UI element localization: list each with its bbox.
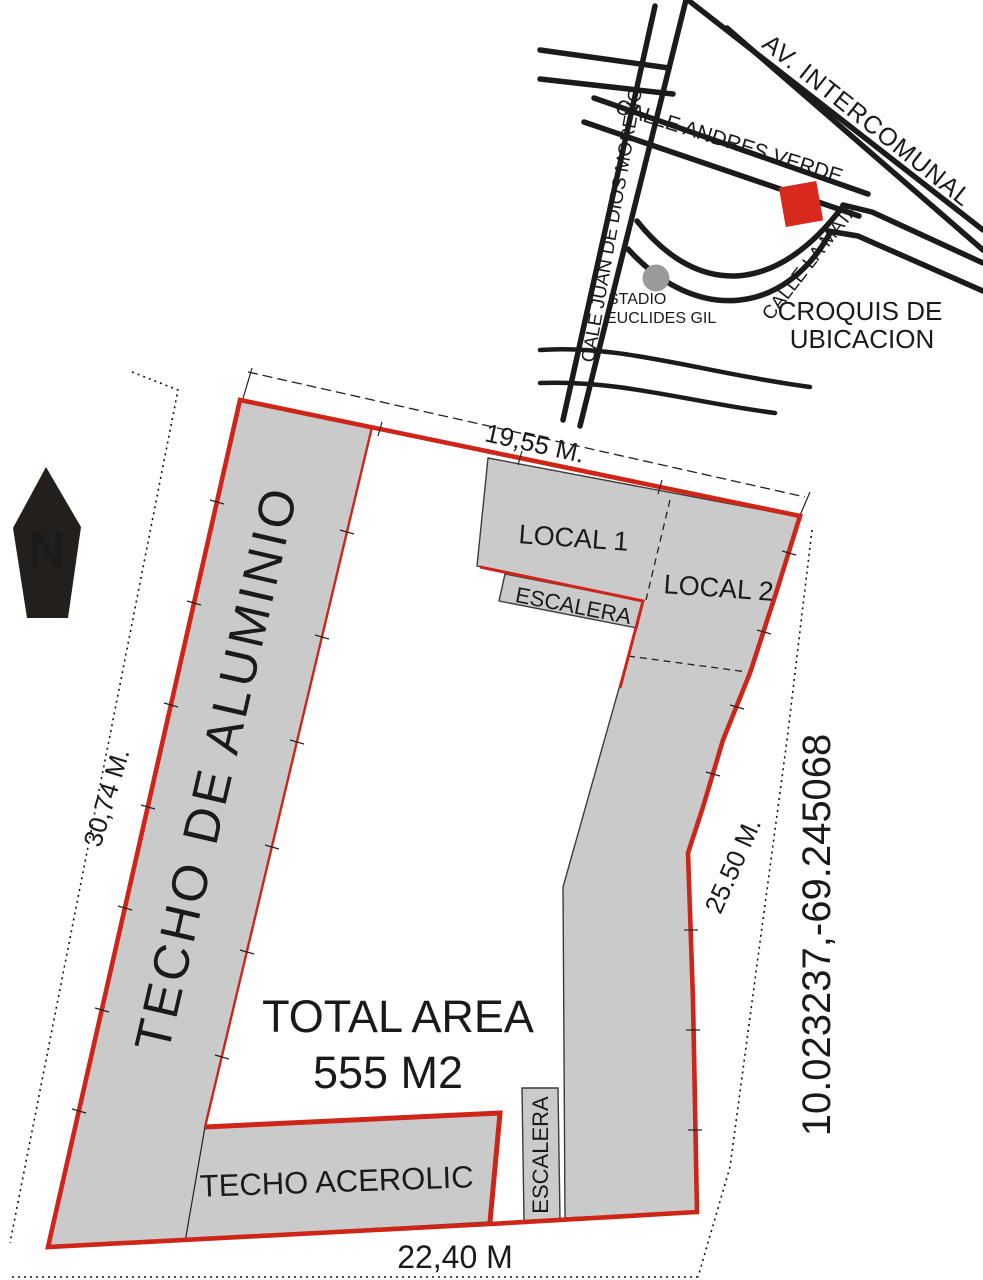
gps-coordinates: 10.023237,-69.245068	[795, 734, 839, 1137]
street-stadium-road	[540, 383, 775, 413]
label-total-area-line1: TOTAL AREA	[262, 991, 534, 1042]
north-label: N	[28, 521, 66, 579]
street-andres-verde-left	[540, 79, 673, 94]
dimension-tick	[242, 368, 252, 402]
stadium-label-line1: STADIO	[608, 291, 666, 308]
location-map: AV. INTERCOMUNAL CALLE ANDRES VERDE CALE…	[540, 0, 983, 426]
stadium-label-line2: EUCLIDES GIL	[606, 310, 716, 327]
street-andres-verde-left	[540, 50, 669, 68]
stadium-dot	[643, 265, 670, 292]
dimension-bottom: 22,40 M	[397, 1239, 513, 1275]
street-label-av-intercomunal: AV. INTERCOMUNAL	[757, 29, 977, 212]
map-title-line1: CROQUIS DE	[778, 296, 943, 326]
building-areas	[48, 400, 800, 1247]
label-total-area-line2: 555 M2	[313, 1047, 463, 1098]
site-plan-document: AV. INTERCOMUNAL CALLE ANDRES VERDE CALE…	[0, 0, 983, 1280]
north-arrow: N	[13, 467, 81, 618]
dimension-left: 30,74 M.	[77, 745, 135, 851]
location-marker	[779, 181, 823, 227]
map-title-line2: UBICACION	[790, 324, 934, 354]
label-escalera-bottom: ESCALERA	[528, 1096, 553, 1214]
street-av-intercomunal-branch	[828, 231, 983, 291]
dimension-right: 25.50 M.	[698, 813, 767, 918]
plan-drawing: AV. INTERCOMUNAL CALLE ANDRES VERDE CALE…	[0, 0, 983, 1280]
